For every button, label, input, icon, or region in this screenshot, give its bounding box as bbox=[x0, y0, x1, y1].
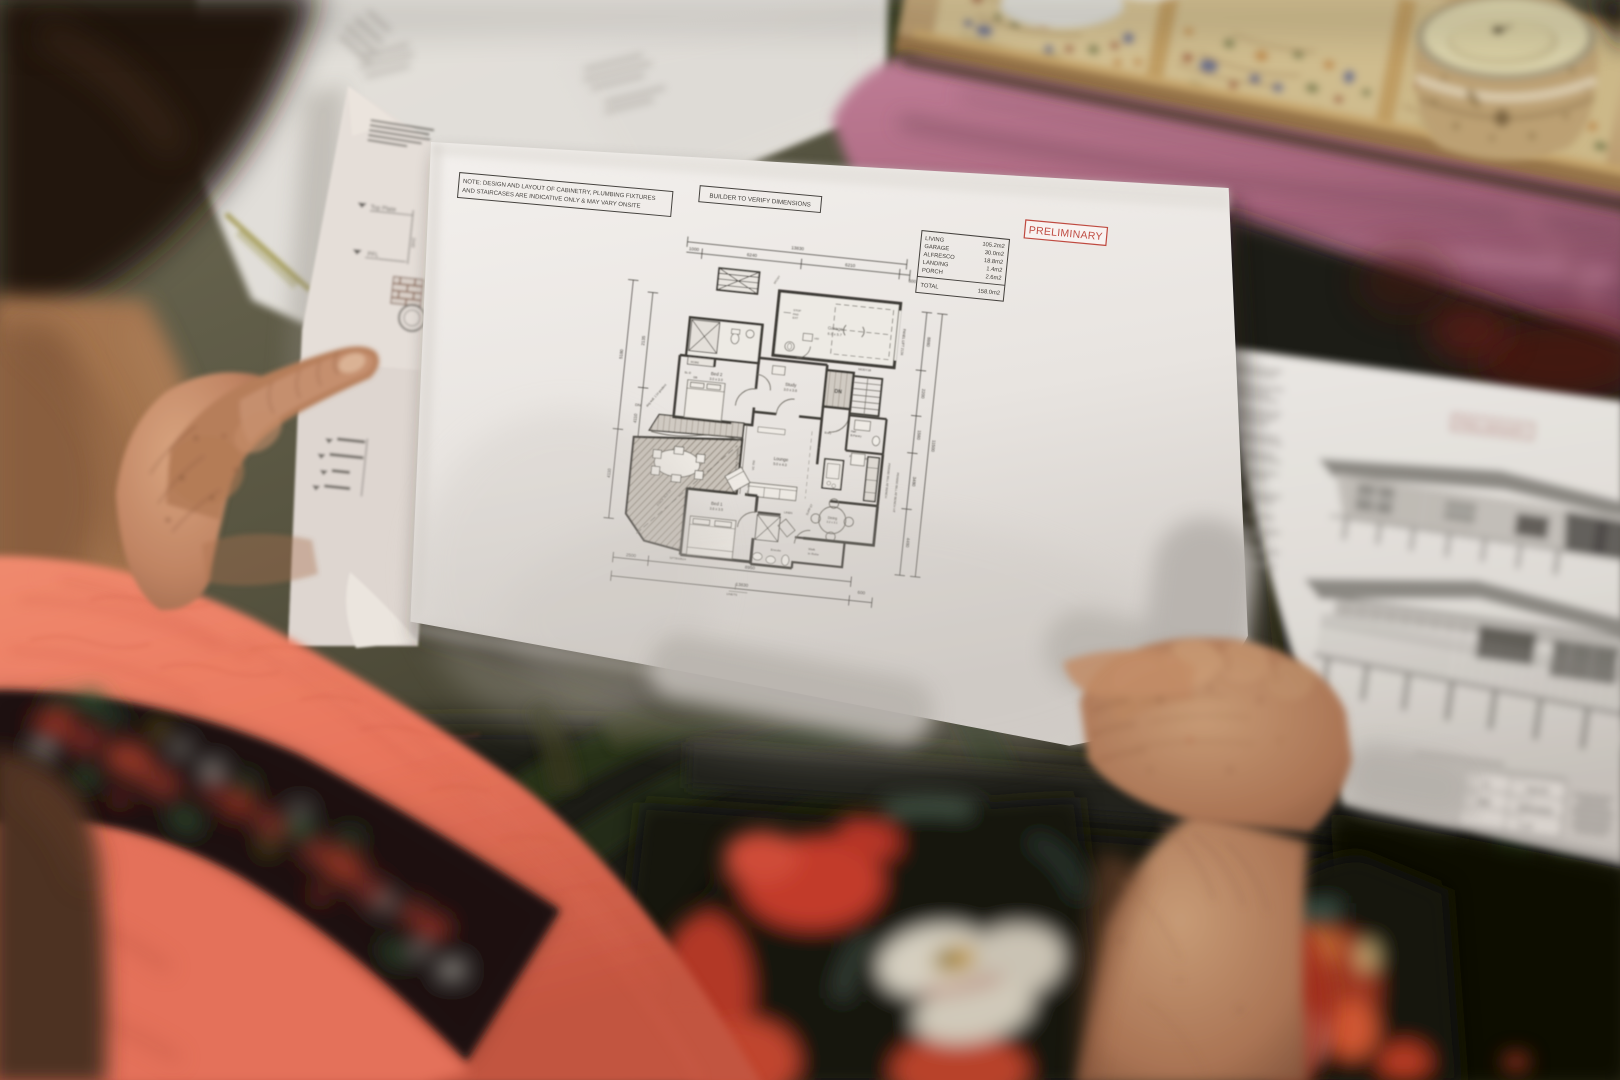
svg-text:5180: 5180 bbox=[618, 348, 624, 359]
svg-text:2135: 2135 bbox=[640, 335, 646, 346]
svg-text:DB: DB bbox=[693, 375, 697, 379]
svg-text:4110: 4110 bbox=[632, 413, 638, 423]
svg-text:SL-D: SL-D bbox=[684, 370, 691, 375]
svg-text:DN: DN bbox=[834, 389, 842, 396]
svg-text:ROBE: ROBE bbox=[691, 360, 700, 365]
svg-text:2200: 2200 bbox=[920, 389, 926, 400]
svg-text:DN: DN bbox=[635, 402, 641, 408]
svg-text:Entry: Entry bbox=[824, 431, 832, 436]
svg-text:600: 600 bbox=[908, 278, 917, 284]
svg-text:8880: 8880 bbox=[925, 337, 931, 348]
svg-text:EXT: EXT bbox=[792, 316, 798, 321]
svg-text:1580: 1580 bbox=[916, 430, 922, 441]
svg-text:3480: 3480 bbox=[911, 476, 917, 487]
